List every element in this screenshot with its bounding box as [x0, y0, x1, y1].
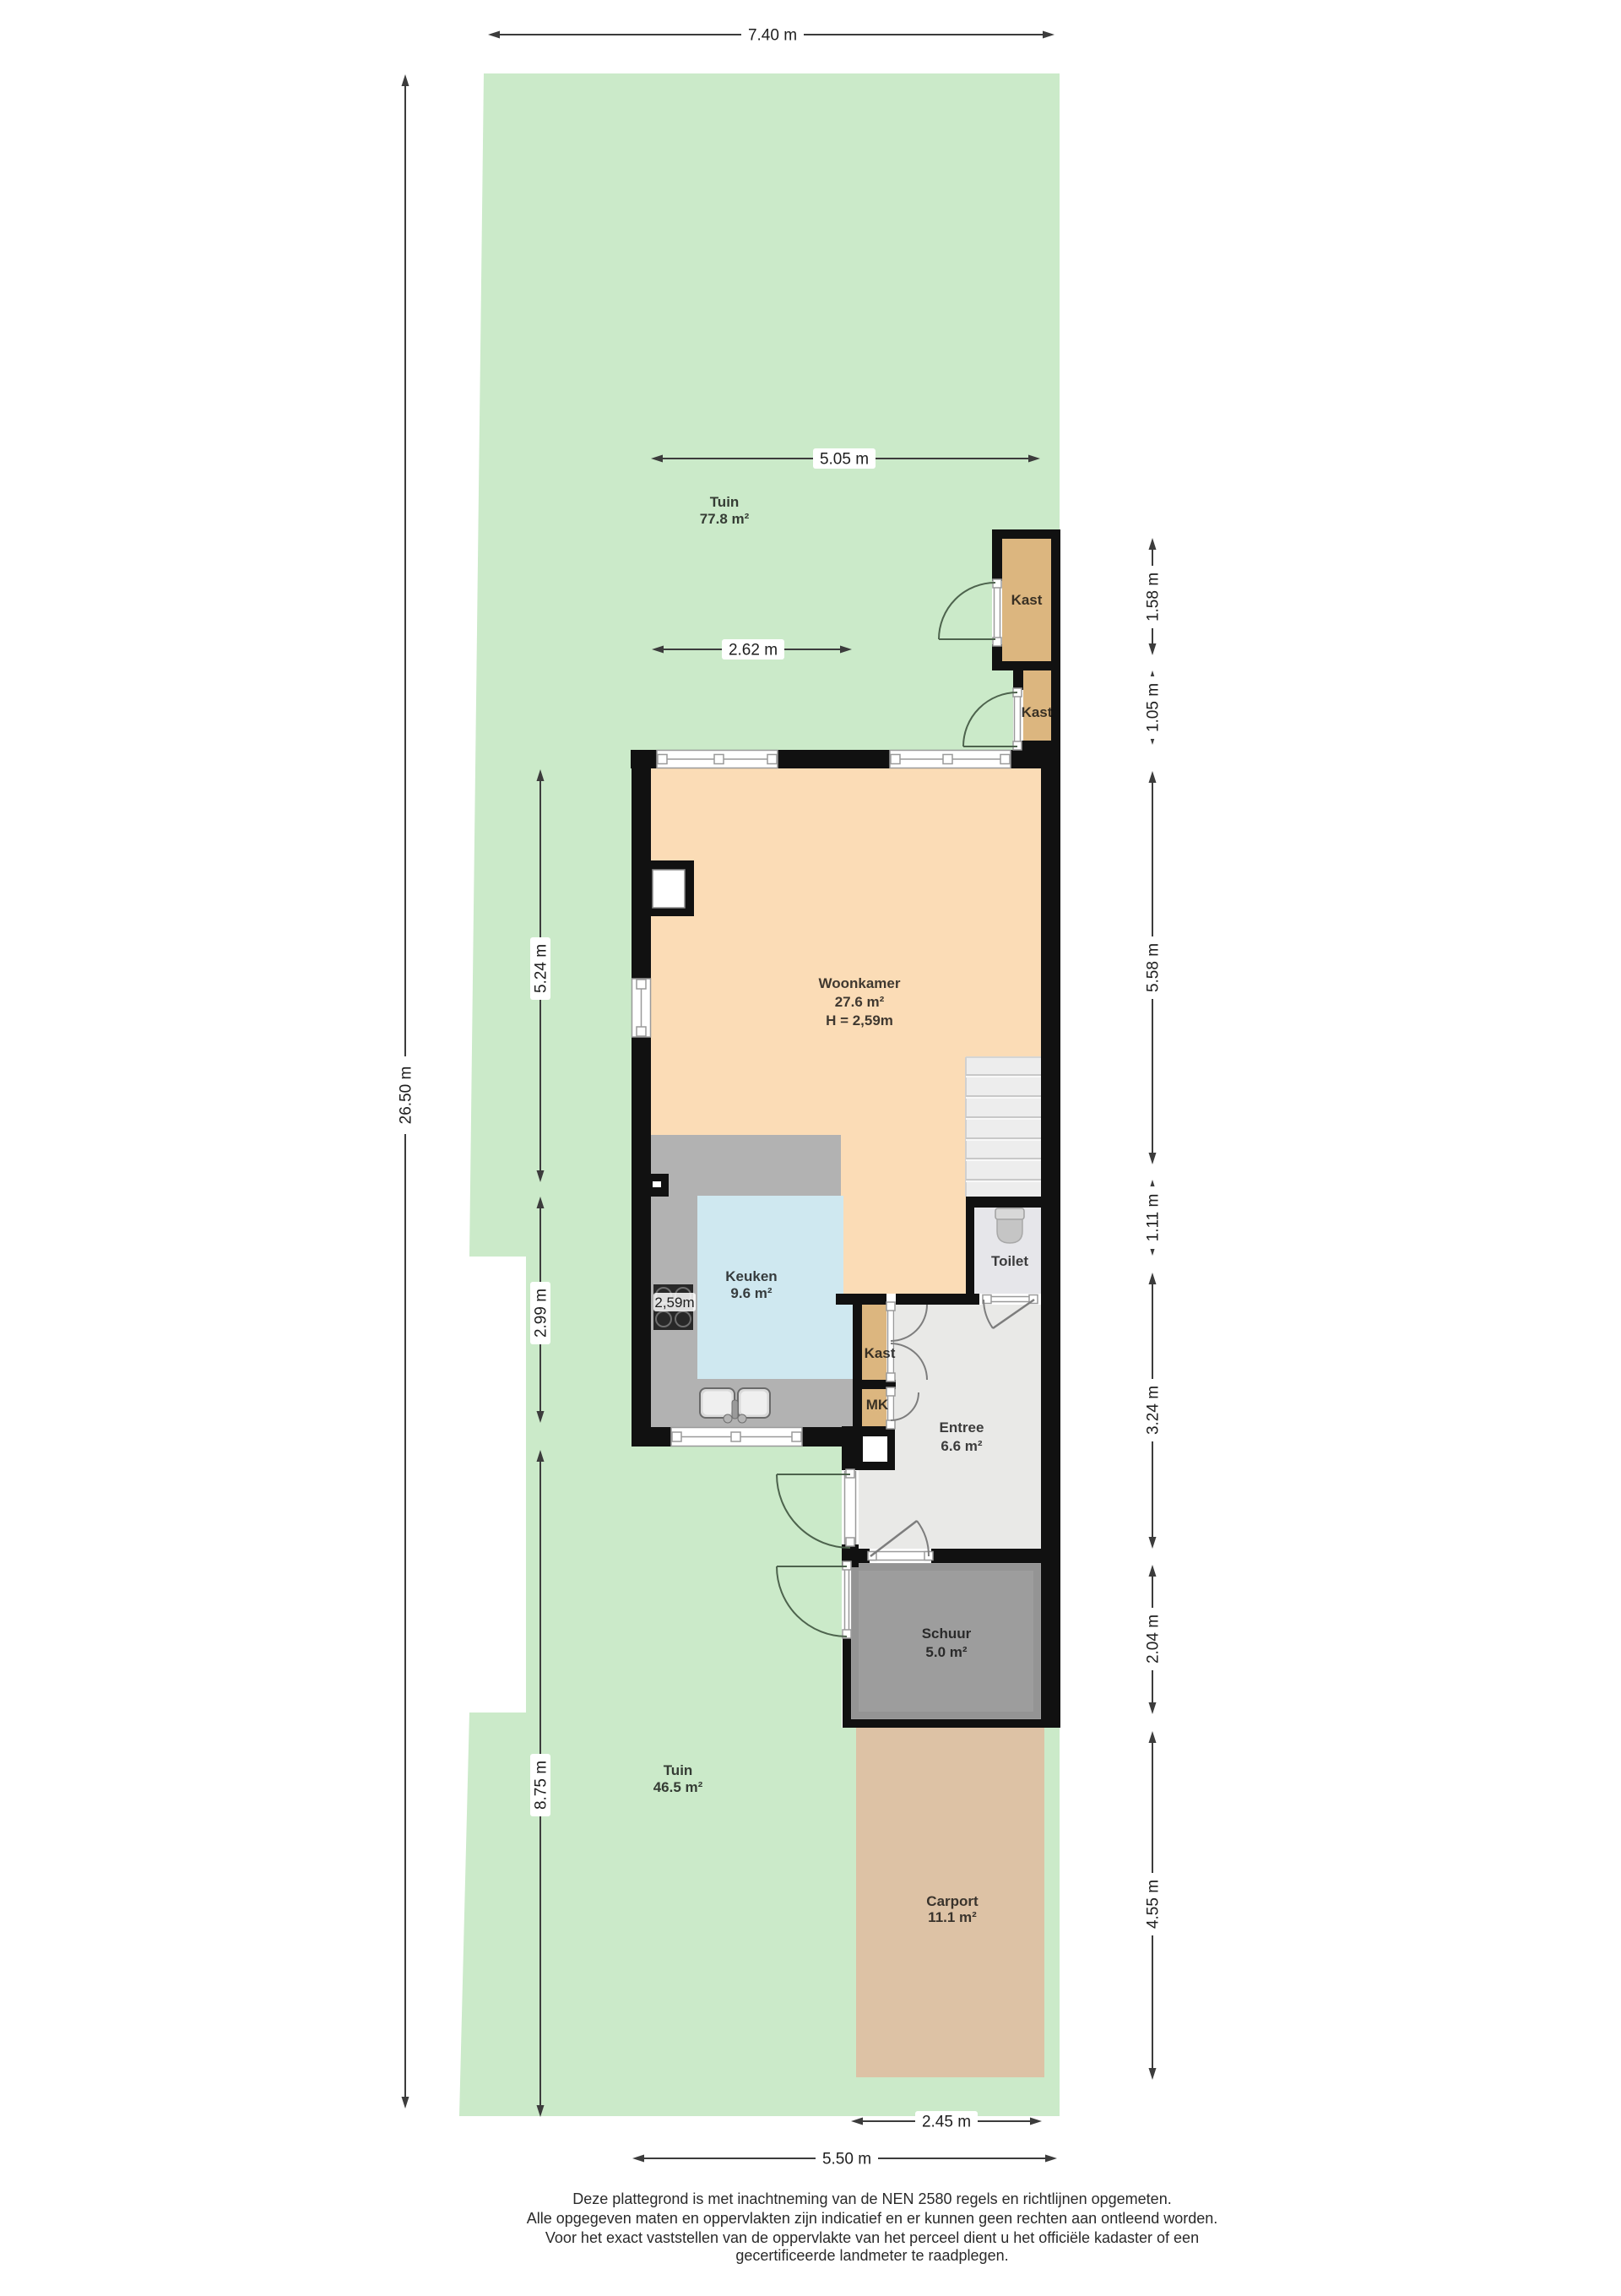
svg-text:2,59m: 2,59m: [654, 1295, 694, 1311]
svg-text:Carport: Carport: [926, 1893, 979, 1909]
svg-text:gecertificeerde landmeter te r: gecertificeerde landmeter te raadplegen.: [735, 2247, 1008, 2264]
svg-text:Alle opgegeven maten en opperv: Alle opgegeven maten en oppervlakten zij…: [527, 2210, 1218, 2227]
svg-text:Keuken: Keuken: [725, 1268, 777, 1284]
svg-text:Tuin: Tuin: [664, 1762, 693, 1778]
svg-text:Kast: Kast: [865, 1345, 896, 1361]
svg-text:1.58 m: 1.58 m: [1145, 573, 1163, 621]
svg-text:2.45 m: 2.45 m: [922, 2114, 971, 2131]
svg-text:Voor het exact vaststellen van: Voor het exact vaststellen van de opperv…: [545, 2229, 1199, 2246]
svg-text:9.6 m²: 9.6 m²: [730, 1285, 772, 1301]
svg-text:2.99 m: 2.99 m: [533, 1289, 550, 1338]
svg-text:5.50 m: 5.50 m: [822, 2151, 871, 2168]
svg-text:5.05 m: 5.05 m: [820, 451, 869, 469]
svg-text:77.8 m²: 77.8 m²: [700, 511, 750, 527]
svg-text:7.40 m: 7.40 m: [748, 27, 797, 45]
svg-text:2.62 m: 2.62 m: [729, 642, 778, 659]
svg-text:Toilet: Toilet: [991, 1253, 1028, 1269]
svg-text:MK: MK: [866, 1397, 889, 1413]
svg-text:3.24 m: 3.24 m: [1145, 1386, 1163, 1435]
svg-text:1.05 m: 1.05 m: [1145, 683, 1163, 732]
svg-text:Woonkamer: Woonkamer: [819, 975, 901, 991]
svg-text:5.58 m: 5.58 m: [1145, 943, 1163, 992]
svg-text:5.0 m²: 5.0 m²: [925, 1644, 967, 1660]
svg-text:Entree: Entree: [940, 1419, 984, 1436]
svg-text:26.50 m: 26.50 m: [398, 1067, 415, 1125]
svg-text:Tuin: Tuin: [710, 494, 740, 510]
svg-text:6.6 m²: 6.6 m²: [941, 1438, 982, 1454]
svg-text:Deze plattegrond is met inacht: Deze plattegrond is met inachtneming van…: [572, 2190, 1171, 2207]
svg-text:5.24 m: 5.24 m: [533, 944, 550, 993]
svg-text:8.75 m: 8.75 m: [533, 1761, 550, 1810]
svg-text:27.6 m²: 27.6 m²: [835, 994, 885, 1010]
svg-text:1.11 m: 1.11 m: [1145, 1194, 1163, 1242]
svg-text:46.5 m²: 46.5 m²: [653, 1779, 703, 1795]
svg-text:2.04 m: 2.04 m: [1145, 1615, 1163, 1664]
svg-text:Schuur: Schuur: [922, 1626, 972, 1642]
svg-text:11.1 m²: 11.1 m²: [928, 1909, 977, 1925]
svg-text:H = 2,59m: H = 2,59m: [826, 1012, 893, 1029]
svg-text:4.55 m: 4.55 m: [1145, 1880, 1163, 1929]
svg-text:Kast: Kast: [1022, 704, 1053, 720]
svg-text:Kast: Kast: [1011, 592, 1043, 608]
